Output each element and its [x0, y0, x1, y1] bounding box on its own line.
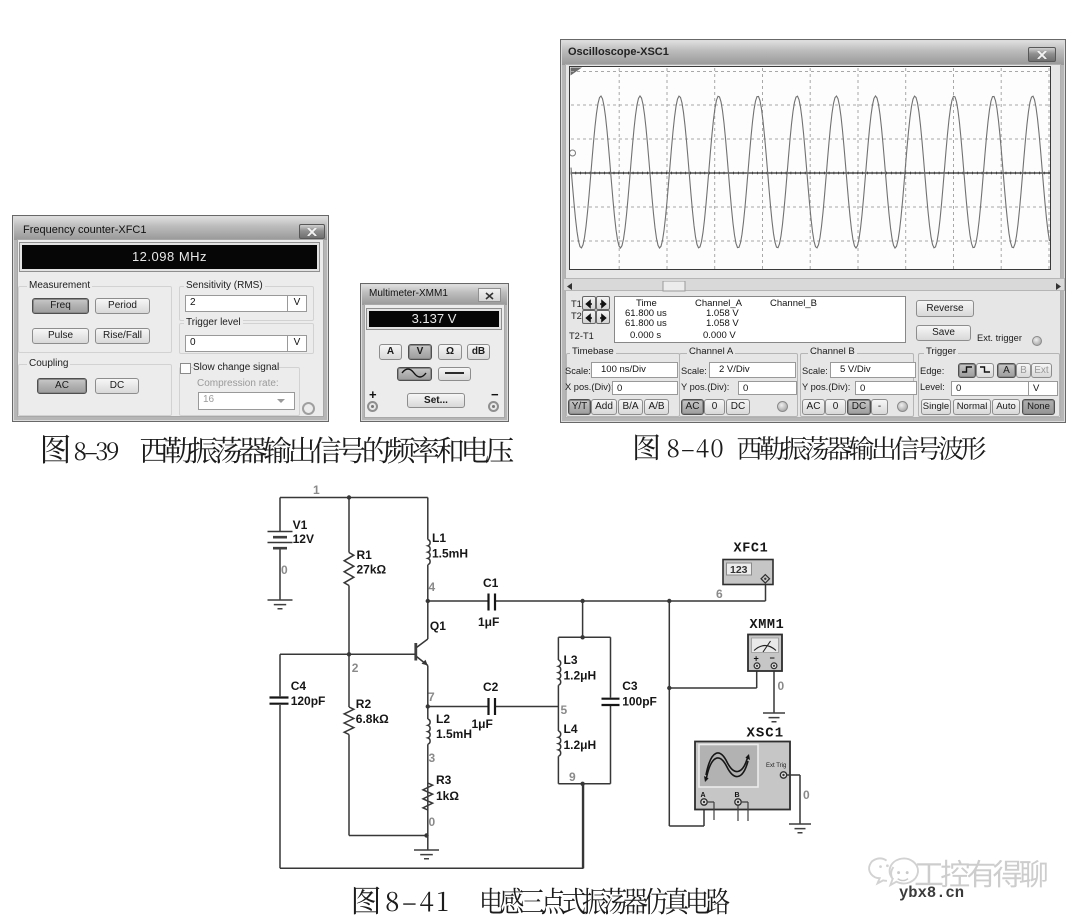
svg-text:ybx8.cn: ybx8.cn: [899, 884, 964, 902]
